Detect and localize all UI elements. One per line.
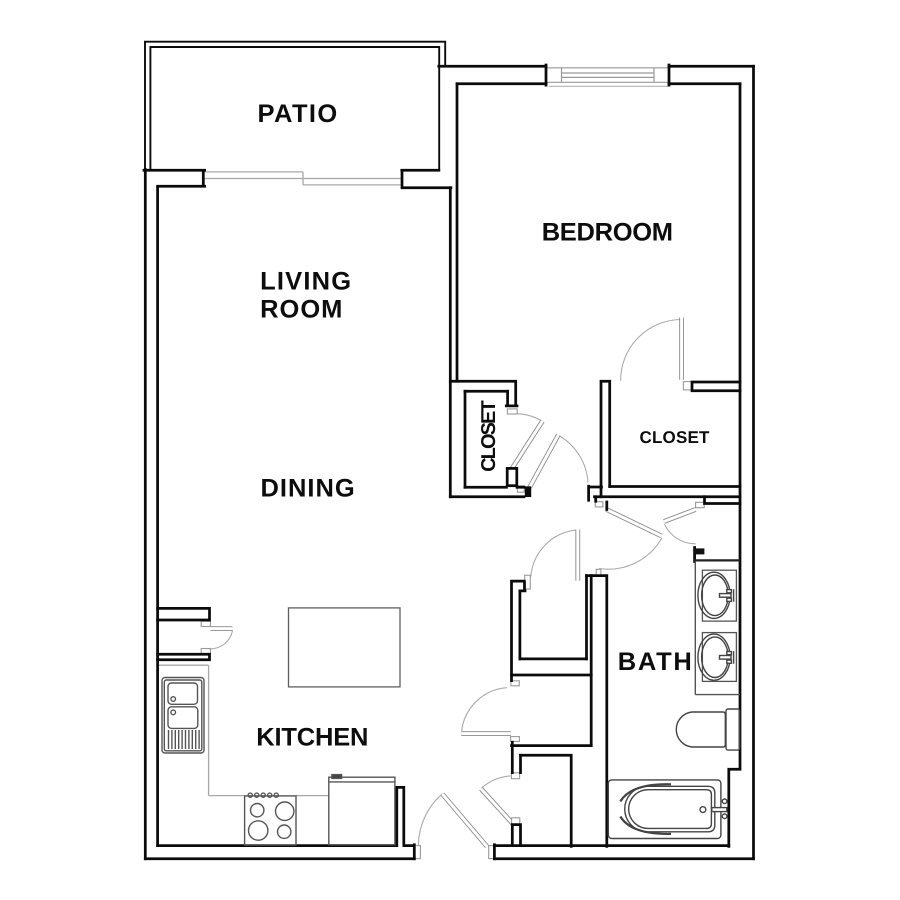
svg-text:CLOSET: CLOSET [478,401,500,472]
svg-text:CLOSET: CLOSET [640,428,711,447]
svg-text:LIVING: LIVING [260,268,352,296]
svg-text:PATIO: PATIO [258,100,339,128]
svg-text:ROOM: ROOM [260,295,343,323]
svg-text:DINING: DINING [261,475,356,503]
svg-text:KITCHEN: KITCHEN [256,723,368,751]
svg-text:BATH: BATH [618,648,694,676]
svg-text:BEDROOM: BEDROOM [542,218,673,246]
